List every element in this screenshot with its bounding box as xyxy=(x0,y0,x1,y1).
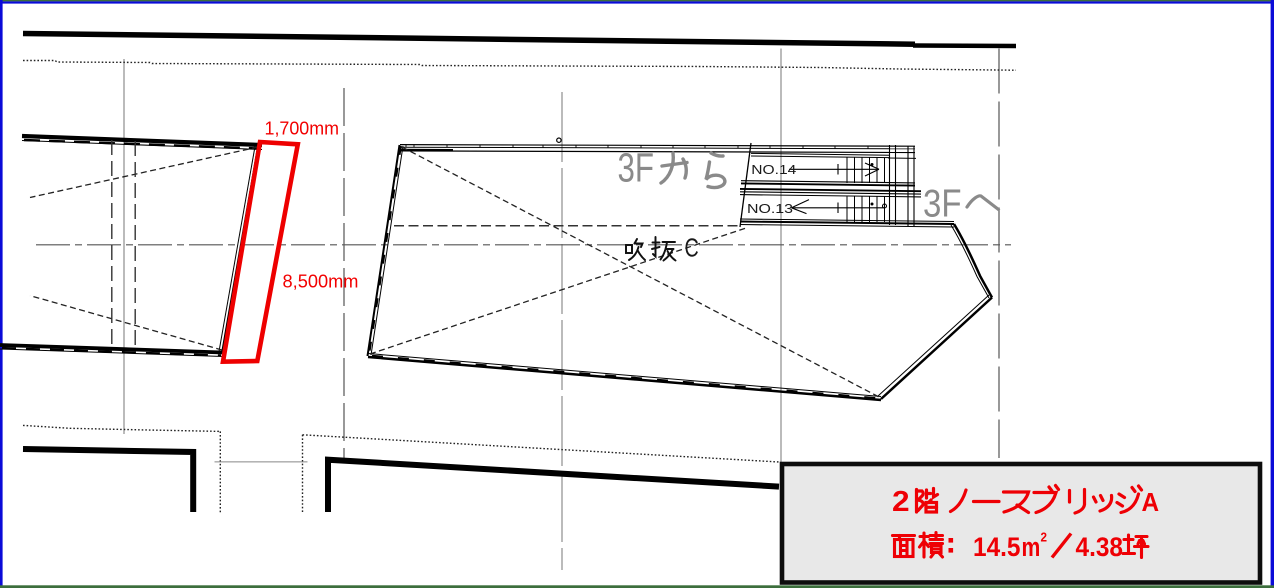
svg-text:3F: 3F xyxy=(618,145,655,191)
svg-text:14.5: 14.5 xyxy=(973,532,1021,562)
svg-text:NO.13: NO.13 xyxy=(747,201,793,216)
svg-text:C: C xyxy=(685,233,699,263)
svg-text:2: 2 xyxy=(1041,530,1048,545)
svg-text:m: m xyxy=(1022,532,1041,562)
svg-text:2: 2 xyxy=(892,486,910,518)
svg-text:8,500mm: 8,500mm xyxy=(283,272,359,292)
svg-text:NO.14: NO.14 xyxy=(751,162,796,177)
svg-text:3F: 3F xyxy=(923,183,962,226)
svg-text:4.38: 4.38 xyxy=(1076,532,1124,562)
svg-text:1,700mm: 1,700mm xyxy=(265,119,340,139)
svg-text:A: A xyxy=(1142,487,1160,517)
